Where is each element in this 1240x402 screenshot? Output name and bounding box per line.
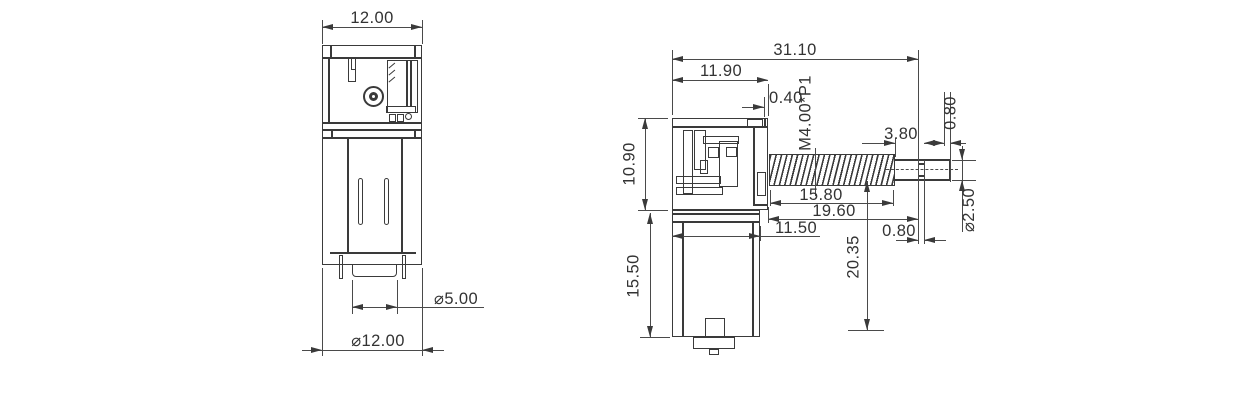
shaft-centerline [886, 169, 958, 170]
dimension-line [638, 210, 668, 211]
dim-tip-step: 0.80 [942, 96, 961, 130]
dim-gearbox-height: 10.90 [621, 142, 640, 185]
front-flange [322, 130, 422, 138]
extension-line [924, 160, 925, 244]
dim-boss-diameter: ⌀5.00 [434, 289, 478, 309]
extension-line [760, 226, 761, 241]
dim-thread-runout: 3.80 [884, 125, 918, 144]
dim-motor-width: 11.50 [775, 219, 817, 238]
extension-line [645, 118, 646, 210]
dimension-arrow [933, 140, 944, 146]
extension-line [918, 50, 919, 244]
circle-feature [405, 113, 412, 120]
dim-body-diameter: ⌀12.00 [351, 331, 405, 351]
outline-rect [386, 106, 416, 113]
part-line [895, 179, 950, 181]
extension-line [422, 20, 423, 44]
outline-rect [747, 119, 763, 127]
dimension-arrow [422, 347, 433, 353]
dimension-arrow [864, 181, 870, 192]
dimension-arrow [311, 347, 322, 353]
dim-gearbox-length: 11.90 [700, 62, 742, 81]
dimension-arrow [924, 237, 935, 243]
extension-line [322, 268, 323, 356]
part-line [322, 122, 422, 124]
outline-rect [397, 114, 404, 122]
dimension-arrow [352, 304, 363, 310]
thread-spec-label: M4.00*P1 [797, 75, 816, 151]
dimension-arrow [411, 24, 422, 30]
motor-vent-slot [384, 178, 389, 225]
dimension-line [952, 160, 976, 161]
extension-line [650, 213, 651, 337]
front-motor-outline [322, 138, 422, 265]
extension-line [893, 190, 894, 206]
part-line [330, 252, 416, 254]
outline-rect [693, 337, 735, 349]
outline-rect [757, 172, 766, 196]
part-line [330, 45, 332, 58]
part-line [764, 118, 766, 127]
dimension-arrow [647, 326, 653, 337]
dim-motor-length: 15.50 [625, 254, 644, 297]
motor-vent-slot [358, 178, 363, 225]
circle-feature [369, 92, 378, 101]
dimension-arrow [864, 319, 870, 330]
dimension-arrow [753, 104, 764, 110]
part-line [753, 127, 755, 205]
part-line [406, 60, 408, 107]
part-line [401, 138, 403, 253]
dim-overall-length: 31.10 [773, 41, 816, 60]
part-line [672, 221, 760, 223]
extension-line [422, 268, 423, 356]
motor-terminal [402, 255, 406, 279]
outline-rect [683, 130, 693, 194]
outline-rect [726, 147, 737, 157]
dimension-arrow [959, 149, 965, 160]
dim-axis-to-base: 20.35 [845, 235, 864, 278]
outline-rect [351, 58, 356, 70]
part-line [322, 57, 422, 59]
dimension-arrow [322, 24, 333, 30]
extension-line [764, 97, 765, 117]
part-line [414, 45, 416, 58]
dimension-arrow [770, 200, 781, 206]
dimension-line [640, 337, 670, 338]
engineering-drawing: 12.00 ⌀5.00 ⌀12.00 [0, 0, 1240, 402]
outline-rect [708, 147, 719, 158]
part-line [753, 204, 768, 206]
part-line [414, 130, 416, 138]
dimension-arrow [882, 200, 893, 206]
dim-front-width: 12.00 [350, 9, 393, 28]
dimension-arrow [950, 140, 961, 146]
dimension-arrow [642, 199, 648, 210]
dimension-arrow [907, 56, 918, 62]
lead-screw-thread [769, 154, 895, 186]
outline-rect [700, 160, 708, 174]
dimension-arrow [642, 118, 648, 129]
motor-terminal [339, 255, 343, 279]
dimension-arrow [647, 213, 653, 224]
extension-line [397, 280, 398, 314]
dimension-arrow [757, 77, 768, 83]
part-line [672, 213, 760, 215]
dimension-line [848, 330, 884, 331]
outline-rect [389, 114, 396, 122]
extension-line [867, 181, 868, 330]
dimension-arrow [672, 233, 683, 239]
dimension-arrow [386, 304, 397, 310]
part-line [328, 57, 330, 123]
dim-shaft-tip-diameter: ⌀2.50 [959, 188, 979, 232]
dim-screw-length: 19.60 [812, 202, 855, 221]
dim-groove-width: 0.80 [882, 222, 916, 241]
outline-rect [676, 187, 723, 195]
outline-rect [676, 176, 721, 184]
outline-rect [705, 318, 725, 337]
dimension-arrow [672, 77, 683, 83]
outline-rect [709, 349, 719, 355]
dimension-arrow [749, 233, 760, 239]
dimension-arrow [672, 56, 683, 62]
shaft-tip [895, 159, 950, 161]
part-line [347, 138, 349, 253]
part-line [331, 130, 333, 138]
motor-end-boss [352, 264, 397, 277]
part-line [410, 60, 412, 107]
